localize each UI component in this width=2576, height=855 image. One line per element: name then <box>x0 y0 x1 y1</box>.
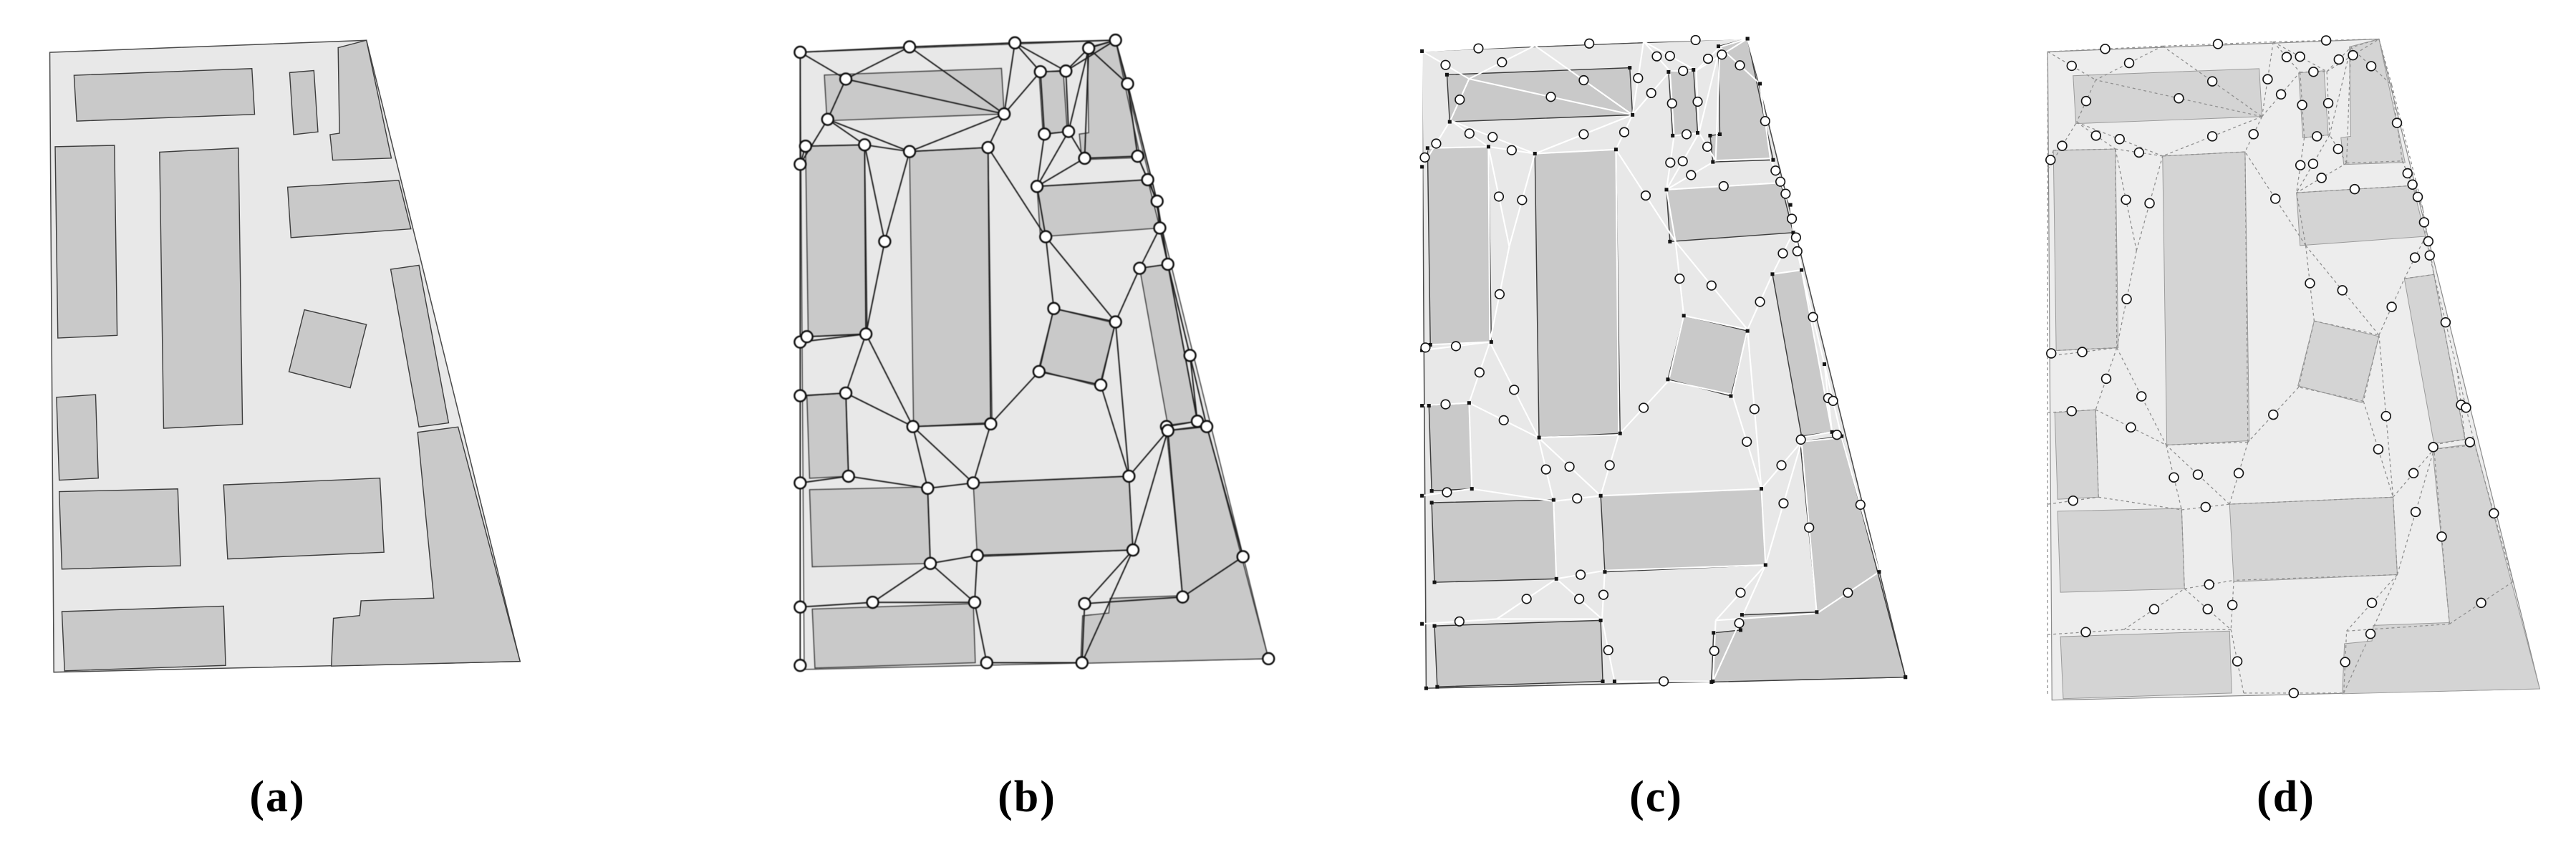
corner-dot <box>1671 134 1674 137</box>
sample-point <box>2126 422 2136 432</box>
corner-dot <box>1552 498 1555 502</box>
panel-b-triangulation <box>772 20 1282 691</box>
sample-point <box>2295 52 2305 62</box>
sample-point <box>1573 494 1582 503</box>
sample-point <box>1465 129 1475 138</box>
panel-d-partition <box>2018 18 2554 723</box>
graph-node <box>1162 425 1174 436</box>
graph-node <box>822 114 834 125</box>
graph-node <box>1079 153 1091 164</box>
corner-dot <box>1823 362 1826 366</box>
sample-point <box>1441 60 1450 69</box>
graph-node <box>1134 263 1145 274</box>
sample-point <box>2271 194 2280 203</box>
building <box>160 148 243 428</box>
sample-point <box>1678 157 1687 166</box>
sample-point <box>2387 302 2396 311</box>
graph-node <box>907 421 919 433</box>
corner-dot <box>1668 240 1671 243</box>
sample-point <box>1495 290 1505 299</box>
panel-c-canvas <box>1393 18 1919 710</box>
building <box>1427 147 1491 345</box>
building <box>1434 620 1603 687</box>
sample-point <box>2277 90 2286 99</box>
building <box>809 487 930 566</box>
corner-dot <box>1470 487 1474 491</box>
corner-dot <box>1666 70 1670 74</box>
corner-dot <box>1445 73 1449 77</box>
corner-dot <box>1800 269 1803 272</box>
corner-dot <box>1538 436 1541 440</box>
corner-dot <box>1758 82 1762 85</box>
sample-point <box>1717 50 1727 59</box>
sample-point <box>1779 499 1788 508</box>
building <box>806 145 867 337</box>
sample-point <box>1735 61 1745 70</box>
corner-dot <box>1420 494 1424 498</box>
corner-dot <box>1760 487 1763 491</box>
graph-node <box>1263 653 1274 665</box>
sample-point <box>1793 247 1802 256</box>
graph-node <box>1110 34 1121 46</box>
corner-dot <box>1427 404 1431 407</box>
building <box>812 604 975 668</box>
caption-c-label: (c) <box>1629 773 1683 821</box>
sample-point <box>2309 67 2318 77</box>
graph-node <box>1083 42 1094 54</box>
sample-point <box>2137 392 2146 401</box>
sample-point <box>1605 460 1614 470</box>
sample-point <box>1499 416 1508 425</box>
graph-node <box>1048 303 1060 314</box>
sample-point <box>2067 407 2076 416</box>
panel-a-base-map <box>21 20 534 694</box>
sample-point <box>1546 92 1555 102</box>
sample-point <box>1792 233 1801 242</box>
sample-point <box>2350 185 2360 194</box>
building <box>1535 150 1620 438</box>
sample-point <box>1641 191 1651 201</box>
sample-point <box>2201 503 2210 512</box>
graph-node <box>794 602 806 613</box>
corner-dot <box>1433 624 1437 628</box>
figure-page: { "figure": { "labels": [ {"id": "a", "t… <box>0 0 2576 855</box>
sample-point <box>2078 347 2087 357</box>
sample-point <box>1639 403 1649 412</box>
sample-point <box>1776 177 1785 186</box>
sample-point <box>1495 192 1504 201</box>
graph-node <box>794 158 806 170</box>
sample-point <box>1703 142 1712 152</box>
sample-point <box>1488 132 1497 142</box>
sample-point <box>2145 198 2154 208</box>
graph-node <box>981 657 993 669</box>
sample-point <box>2411 508 2421 517</box>
corner-dot <box>1619 432 1622 435</box>
corner-dot <box>1740 613 1744 617</box>
sample-point <box>1508 145 1517 155</box>
corner-dot <box>1424 687 1428 690</box>
graph-node <box>860 328 872 339</box>
graph-node <box>983 142 994 153</box>
panel-c-white-mesh <box>1393 18 1919 710</box>
caption-d: (d) <box>2018 772 2554 823</box>
corner-dot <box>1614 148 1618 151</box>
graph-node <box>1095 380 1106 391</box>
corner-dot <box>1770 272 1774 276</box>
graph-node <box>998 108 1010 120</box>
caption-c: (c) <box>1393 772 1919 823</box>
corner-dot <box>1628 66 1631 69</box>
sample-point <box>1856 501 1865 510</box>
sample-point <box>2413 193 2423 202</box>
sample-point <box>1675 274 1684 284</box>
building <box>1601 489 1765 572</box>
graph-node <box>794 47 806 58</box>
sample-point <box>1575 594 1584 604</box>
sample-point <box>2322 36 2331 45</box>
sample-point <box>1843 588 1853 597</box>
sample-point <box>1777 460 1786 470</box>
sample-point <box>1475 368 1485 377</box>
corner-dot <box>1771 158 1775 162</box>
sample-point <box>1693 97 1702 107</box>
graph-node <box>985 418 996 430</box>
corner-dot <box>1426 146 1429 150</box>
building <box>74 69 254 121</box>
graph-node <box>904 146 915 158</box>
sample-point <box>2204 580 2214 589</box>
graph-node <box>1009 37 1021 49</box>
sample-point <box>2419 218 2428 227</box>
graph-node <box>1040 231 1051 243</box>
graph-node <box>1238 551 1249 562</box>
sample-point <box>2169 473 2179 482</box>
sample-point <box>2047 349 2056 358</box>
corner-dot <box>1708 134 1712 137</box>
sample-point <box>2367 62 2376 71</box>
sample-point <box>2249 130 2258 139</box>
sample-point <box>2381 412 2391 421</box>
graph-node <box>922 483 933 494</box>
sample-point <box>1579 76 1588 85</box>
sample-point <box>1510 385 1519 395</box>
building <box>59 489 180 569</box>
sample-point <box>1634 74 1643 83</box>
corner-dot <box>1696 131 1699 135</box>
sample-point <box>2333 145 2343 154</box>
caption-b: (b) <box>772 772 1282 823</box>
graph-node <box>925 558 936 569</box>
sample-point <box>1788 214 1797 223</box>
sample-point <box>2409 468 2418 478</box>
sample-point <box>1667 99 1677 108</box>
graph-node <box>867 596 879 608</box>
building <box>1432 500 1556 582</box>
sample-point <box>1750 405 1760 414</box>
graph-node <box>1035 66 1046 77</box>
graph-node <box>1033 366 1045 377</box>
sample-point <box>1421 343 1430 352</box>
corner-dot <box>1692 68 1695 72</box>
sample-point <box>2134 148 2143 158</box>
sample-point <box>2296 160 2305 170</box>
sample-point <box>1518 195 1527 205</box>
sample-point <box>2269 410 2278 420</box>
sample-point <box>1709 647 1719 656</box>
panel-a-canvas <box>21 20 534 694</box>
sample-point <box>2194 470 2203 479</box>
sample-point <box>2203 604 2212 614</box>
sample-point <box>1620 127 1629 137</box>
corner-dot <box>1815 610 1818 614</box>
sample-point <box>2489 508 2499 518</box>
sample-point <box>1432 139 1441 148</box>
sample-point <box>1522 594 1531 604</box>
graph-node <box>1079 598 1091 609</box>
sample-point <box>1599 590 1608 599</box>
sample-point <box>1778 249 1788 259</box>
sample-point <box>2282 52 2292 62</box>
sample-point <box>1781 189 1790 198</box>
sample-point <box>2125 59 2134 68</box>
sample-point <box>2115 135 2124 144</box>
corner-dot <box>1718 132 1722 136</box>
sample-point <box>1497 58 1507 67</box>
graph-node <box>1110 317 1121 328</box>
building <box>2297 185 2426 246</box>
corner-dot <box>1904 675 1907 679</box>
sample-point <box>2208 132 2217 141</box>
sample-point <box>2234 468 2244 478</box>
corner-dot <box>1467 401 1471 405</box>
sample-point <box>2091 131 2100 140</box>
graph-node <box>1162 259 1174 270</box>
graph-node <box>1127 544 1139 556</box>
corner-dot <box>1490 340 1493 344</box>
sample-point <box>1828 397 1838 406</box>
sample-point <box>2308 159 2317 168</box>
building <box>1037 180 1159 237</box>
corner-dot <box>1682 314 1686 317</box>
graph-node <box>1031 180 1043 192</box>
sample-point <box>1808 312 1818 322</box>
building <box>223 478 384 559</box>
caption-b-label: (b) <box>998 773 1056 821</box>
building <box>55 145 117 338</box>
graph-node <box>968 477 979 488</box>
caption-d-label: (d) <box>2257 773 2315 821</box>
sample-point <box>1679 67 1688 76</box>
graph-node <box>843 470 854 482</box>
caption-a-label: (a) <box>249 773 305 821</box>
corner-dot <box>1420 165 1424 168</box>
sample-point <box>1735 619 1744 628</box>
sample-point <box>1420 153 1429 163</box>
sample-point <box>1736 588 1745 597</box>
sample-point <box>1603 646 1613 655</box>
building <box>910 148 992 427</box>
graph-node <box>794 660 806 671</box>
graph-node <box>840 73 852 84</box>
graph-node <box>800 140 811 152</box>
corner-dot <box>1430 489 1434 493</box>
sample-point <box>2441 318 2451 327</box>
sample-point <box>1742 438 1752 447</box>
graph-node <box>969 596 980 608</box>
sample-point <box>1646 89 1656 98</box>
corner-dot <box>1717 44 1720 48</box>
sample-point <box>1691 36 1700 45</box>
corner-dot <box>1746 329 1750 333</box>
caption-a: (a) <box>21 772 534 823</box>
sample-point <box>2208 77 2217 86</box>
sample-point <box>2068 496 2078 506</box>
sample-point <box>2348 51 2358 60</box>
building <box>2060 631 2232 698</box>
sample-point <box>1565 462 1574 471</box>
corner-dot <box>1420 49 1424 53</box>
sample-point <box>1576 570 1586 579</box>
graph-node <box>1154 222 1166 233</box>
corner-dot <box>1603 570 1606 574</box>
sample-point <box>2150 604 2159 614</box>
sample-point <box>1682 130 1692 139</box>
sample-point <box>2058 141 2067 150</box>
graph-node <box>801 331 813 342</box>
graph-node <box>1177 591 1188 603</box>
graph-node <box>1038 128 1050 140</box>
sample-point <box>2428 443 2438 452</box>
building <box>57 395 98 480</box>
sample-point <box>2214 39 2223 49</box>
sample-point <box>1455 95 1465 105</box>
corner-dot <box>1789 203 1793 207</box>
sample-point <box>1441 400 1450 409</box>
sample-point <box>2334 55 2343 64</box>
sample-point <box>2263 74 2272 84</box>
graph-node <box>1123 470 1134 482</box>
graph-node <box>1185 349 1196 361</box>
building <box>1666 183 1793 241</box>
sample-point <box>1719 182 1728 191</box>
sample-point <box>1707 281 1717 290</box>
corner-dot <box>1430 501 1434 504</box>
sample-point <box>2393 118 2402 127</box>
corner-dot <box>1613 680 1616 683</box>
building <box>2058 508 2184 592</box>
building <box>2229 497 2397 581</box>
sample-point <box>1659 677 1669 686</box>
sample-point <box>2174 94 2184 103</box>
sample-point <box>2046 155 2055 165</box>
sample-point <box>2312 132 2322 141</box>
graph-node <box>1122 78 1134 90</box>
sample-point <box>2317 173 2326 183</box>
sample-point <box>1761 117 1770 126</box>
building <box>330 40 392 160</box>
building <box>807 393 849 478</box>
corner-dot <box>1420 404 1424 407</box>
sample-point <box>2374 445 2383 454</box>
building <box>973 476 1133 556</box>
building <box>1429 403 1472 491</box>
panel-d-canvas <box>2018 18 2554 723</box>
sample-point <box>2408 180 2417 189</box>
graph-node <box>1152 195 1163 207</box>
corner-dot <box>1448 120 1452 124</box>
graph-node <box>840 387 852 399</box>
corner-dot <box>1631 113 1634 117</box>
corner-dot <box>1533 152 1537 155</box>
sample-point <box>2338 286 2347 295</box>
graph-node <box>972 550 983 561</box>
building <box>2163 152 2249 445</box>
sample-point <box>2081 627 2090 637</box>
graph-node <box>1142 174 1154 185</box>
sample-point <box>1452 342 1461 351</box>
sample-point <box>2121 195 2131 205</box>
graph-node <box>1063 126 1074 137</box>
sample-point <box>2233 657 2242 666</box>
sample-point <box>1455 617 1465 627</box>
sample-point <box>1585 39 1594 49</box>
building <box>288 180 411 238</box>
corner-dot <box>1739 628 1742 632</box>
corner-dot <box>1555 577 1558 581</box>
sample-point <box>2082 97 2091 106</box>
sample-point <box>2423 237 2433 246</box>
corner-dot <box>1729 395 1732 398</box>
sample-point <box>2368 598 2377 607</box>
sample-point <box>1805 523 1814 532</box>
corner-dot <box>1711 160 1714 164</box>
corner-dot <box>1601 680 1605 683</box>
building <box>2055 410 2098 499</box>
sample-point <box>1442 488 1452 497</box>
sample-point <box>2476 598 2486 607</box>
sample-point <box>2340 657 2350 667</box>
graph-node <box>1060 65 1071 77</box>
corner-dot <box>1664 188 1668 191</box>
graph-node <box>1132 150 1144 162</box>
corner-dot <box>1420 622 1424 626</box>
building <box>2053 149 2118 350</box>
sample-point <box>2465 438 2474 447</box>
graph-node <box>1076 657 1088 669</box>
graph-node <box>879 236 890 247</box>
graph-node <box>794 390 806 402</box>
corner-dot <box>1711 680 1714 683</box>
sample-point <box>1666 158 1675 168</box>
sample-point <box>1474 44 1483 53</box>
sample-point <box>2297 100 2307 110</box>
sample-point <box>2461 403 2471 412</box>
sample-point <box>1755 297 1765 306</box>
corner-dot <box>1435 685 1439 689</box>
corner-dot <box>1487 145 1490 148</box>
sample-point <box>1666 52 1675 61</box>
sample-point <box>2437 532 2446 541</box>
sample-point <box>1579 130 1588 139</box>
sample-point <box>1833 430 1842 440</box>
sample-point <box>2100 44 2110 54</box>
sample-point <box>2305 279 2315 288</box>
graph-node <box>904 42 915 53</box>
sample-point <box>2324 99 2333 108</box>
corner-dot <box>1433 581 1437 584</box>
building <box>289 71 318 135</box>
